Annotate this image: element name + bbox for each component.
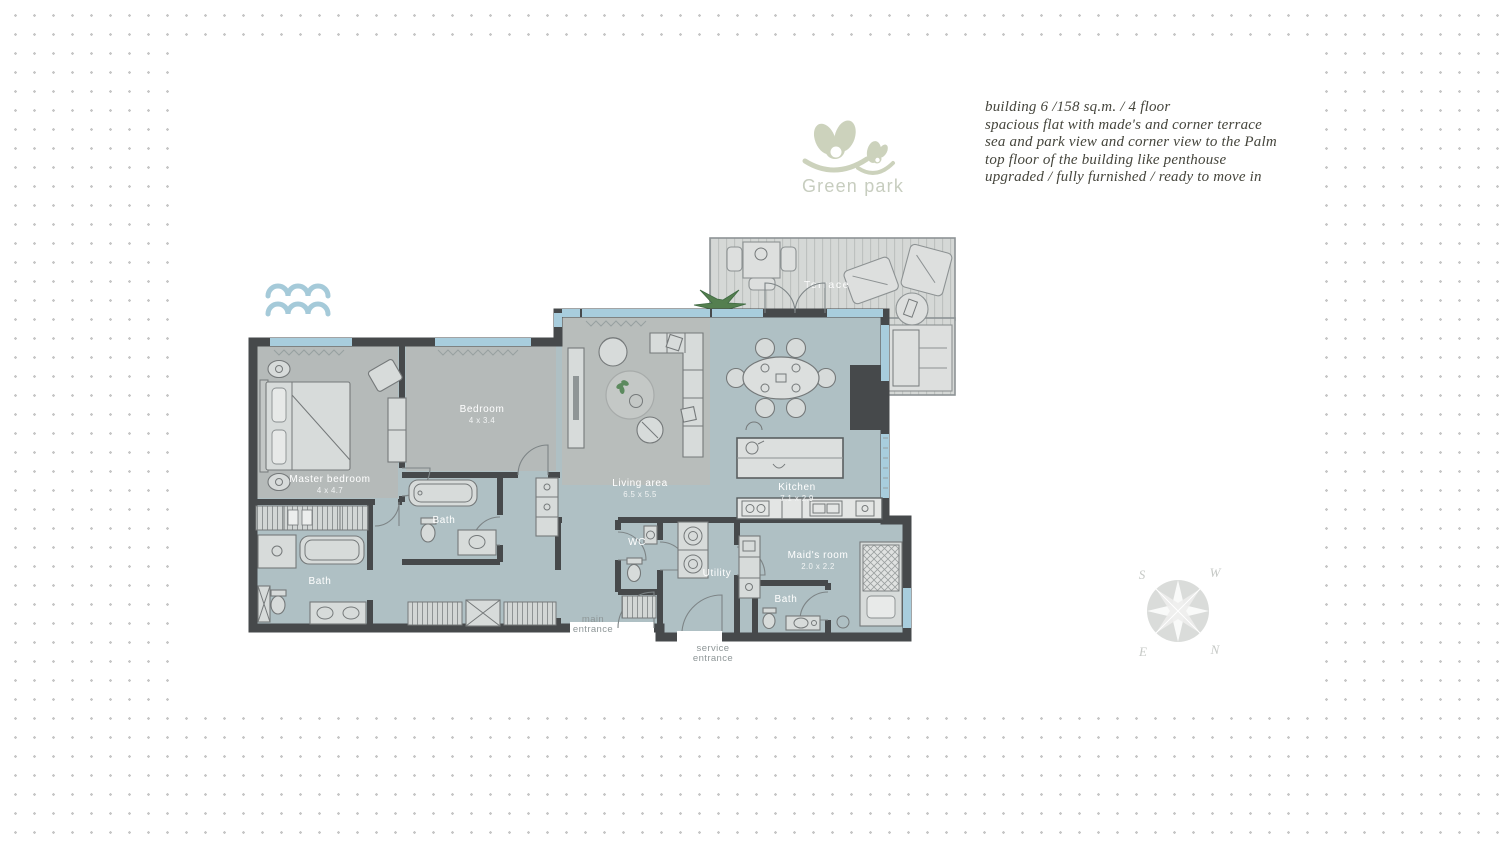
logo-trees-icon [805, 118, 893, 173]
maids-room-dims: 2.0 x 2.2 [801, 562, 835, 571]
master-bath-label: Bath [309, 576, 332, 587]
compass-rose-icon: S W E N [1128, 556, 1228, 666]
master-bedroom-label: Master bedroom [289, 474, 370, 485]
description-line: sea and park view and corner view to the… [985, 134, 1285, 152]
living-area-dims: 6.5 x 5.5 [623, 490, 657, 499]
service-entrance-gap [677, 631, 722, 643]
kitchen-label: Kitchen [778, 482, 816, 493]
sea-waves-icon [268, 286, 328, 314]
bedroom-label: Bedroom [460, 404, 505, 415]
utility-label: Utility [703, 568, 732, 579]
bedroom-dims: 4 x 3.4 [469, 416, 495, 425]
floor-plan-page: Green park building 6 /158 sq.m. / 4 flo… [0, 0, 1500, 842]
living-area-label: Living area [612, 478, 668, 489]
description-line: upgraded / fully furnished / ready to mo… [985, 169, 1285, 187]
main-entrance-label-2: entrance [573, 624, 613, 635]
master-bedroom-dims: 4 x 4.7 [317, 486, 343, 495]
description-line: top floor of the building like penthouse [985, 152, 1285, 170]
compass-letter-e: E [1138, 644, 1147, 659]
terrace-room-label: Terrace [804, 279, 850, 291]
compass-letter-s: S [1139, 567, 1146, 582]
description-line: spacious flat with made's and corner ter… [985, 117, 1285, 135]
compass-letter-w: W [1210, 565, 1222, 580]
wc-label: WC [628, 537, 646, 548]
bedroom-bath-label: Bath [433, 515, 456, 526]
logo-wordmark: Green park [802, 176, 904, 196]
maids-room-label: Maid's room [788, 550, 849, 561]
compass-letter-n: N [1210, 642, 1221, 657]
green-park-logo: Green park [795, 102, 915, 200]
description-line: building 6 /158 sq.m. / 4 floor [985, 99, 1285, 117]
floor-plan: Terrace [230, 230, 990, 670]
listing-description: building 6 /158 sq.m. / 4 floor spacious… [985, 99, 1285, 187]
service-entrance-label-2: entrance [693, 653, 733, 664]
kitchen-dims: 7.1 x 2.9 [780, 494, 814, 503]
terrace-bench [888, 325, 952, 391]
maid-bath-label: Bath [775, 594, 798, 605]
